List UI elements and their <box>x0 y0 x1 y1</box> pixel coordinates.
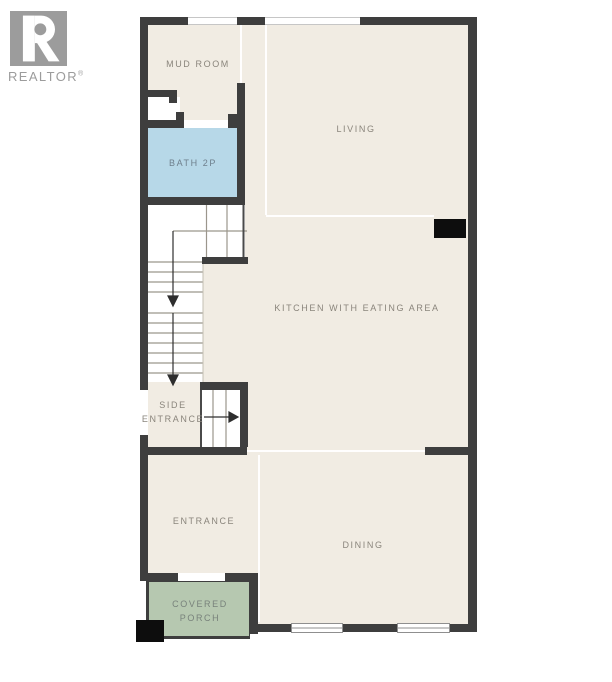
wall <box>237 83 245 205</box>
registered-mark: ® <box>78 71 83 78</box>
wall <box>237 17 265 25</box>
wall <box>140 435 148 578</box>
wall <box>360 17 477 25</box>
window <box>291 623 343 633</box>
wall <box>425 447 468 455</box>
porch-column <box>136 620 164 642</box>
wall <box>240 390 248 447</box>
porch-door-opening <box>178 573 225 581</box>
wall <box>228 114 237 128</box>
bath-door-opening <box>184 120 228 128</box>
wall <box>250 575 258 634</box>
realtor-wordmark: REALTOR® <box>8 69 83 84</box>
realtor-r-icon <box>10 11 67 66</box>
window <box>397 623 450 633</box>
wall <box>146 120 176 128</box>
realtor-logo <box>10 11 67 66</box>
room-label-kitchen: KITCHEN WITH EATING AREA <box>274 303 439 313</box>
room-label-covered-porch: COVERED PORCH <box>172 597 228 625</box>
wall <box>450 624 477 632</box>
room-label-dining: DINING <box>342 540 383 550</box>
wall <box>343 624 397 632</box>
room-label-side-entrance: SIDE ENTRANCE <box>142 398 204 426</box>
wall <box>255 624 291 632</box>
wall <box>140 447 247 455</box>
wall <box>169 90 177 103</box>
wall <box>200 382 248 390</box>
floor-plan-canvas: REALTOR® <box>0 0 612 682</box>
room-label-living: LIVING <box>336 124 375 134</box>
room-label-mud-room: MUD ROOM <box>166 59 230 69</box>
stairwell-upper-fill <box>148 205 245 257</box>
fireplace-stub <box>434 219 466 238</box>
side-entrance-steps-fill <box>200 390 240 447</box>
wall <box>176 112 184 128</box>
room-label-bath: BATH 2P <box>169 158 217 168</box>
wall <box>202 257 248 264</box>
wall <box>468 17 477 632</box>
wall <box>146 197 245 205</box>
window <box>188 17 237 25</box>
window <box>265 17 360 25</box>
room-label-entrance: ENTRANCE <box>173 516 235 526</box>
wall <box>140 573 178 581</box>
stairwell-lower-fill <box>148 257 203 382</box>
